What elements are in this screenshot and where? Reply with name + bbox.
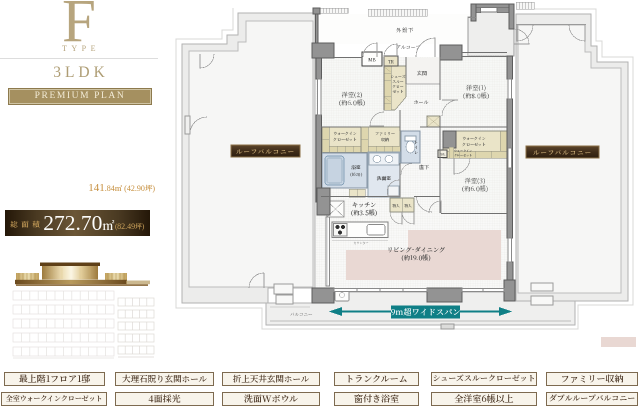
svg-text:トイレ: トイレ: [414, 140, 418, 156]
svg-text:カウンター: カウンター: [353, 240, 368, 245]
svg-text:物入: 物入: [391, 203, 400, 209]
svg-text:クローゼット: クローゼット: [454, 153, 472, 158]
svg-text:クローゼット: クローゼット: [333, 137, 357, 143]
svg-text:廅下: 廅下: [419, 164, 429, 171]
svg-text:MB: MB: [367, 58, 376, 64]
svg-text:バルコニー: バルコニー: [289, 312, 313, 318]
svg-text:9m超ワイドスパン: 9m超ワイドスパン: [391, 307, 461, 318]
svg-text:浴室: 浴室: [351, 164, 361, 171]
svg-text:(約19.0帳): (約19.0帳): [401, 253, 430, 262]
svg-text:(約3.5帳): (約3.5帳): [351, 208, 377, 217]
svg-text:玄関: 玄関: [417, 70, 427, 77]
svg-text:シューズスルークローゼット: シューズスルークローゼット: [391, 74, 406, 95]
svg-text:(1620): (1620): [350, 172, 363, 178]
svg-text:洗面室: 洗面室: [377, 175, 392, 182]
svg-text:ルーフバルコニー: ルーフバルコニー: [236, 147, 295, 156]
svg-text:TR: TR: [388, 60, 394, 66]
svg-text:収納: 収納: [381, 137, 389, 143]
svg-text:ルーフバルコニー: ルーフバルコニー: [533, 148, 592, 157]
svg-text:外鈖下: 外鈖下: [396, 26, 415, 34]
svg-text:物入: 物入: [403, 203, 412, 209]
svg-text:ホール: ホール: [414, 99, 429, 106]
